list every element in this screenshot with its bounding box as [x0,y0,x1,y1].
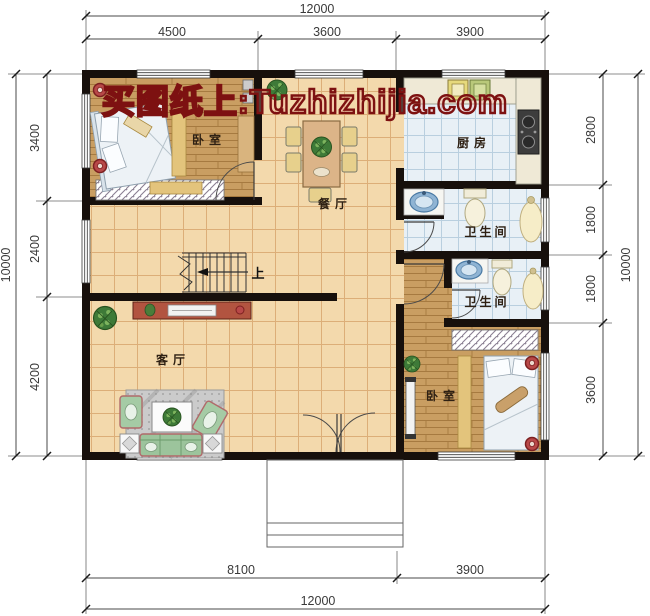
dim-top-total: 12000 [300,2,335,16]
dim-top-seg3: 3900 [456,25,484,39]
window [82,220,90,283]
room-label-bedroom-top: 卧室 [192,132,226,147]
window [82,94,90,168]
watermark-text: 买图纸上:Tuzhizhijia.com [102,83,508,120]
toilet [492,260,512,295]
dim-right-seg1: 2800 [584,116,598,144]
floor-plan-page: 卧室 餐厅 厨房 卫生间 卫生间 客厅 卧室 上 买图纸上:Tuzhizhiji… [0,0,650,616]
room-label-bath-lower: 卫生间 [464,294,509,309]
room-label-kitchen: 厨房 [457,135,491,150]
dim-right-seg4: 3600 [584,376,598,404]
window [438,452,515,460]
dim-bottom-seg1: 8100 [227,563,255,577]
armchair [120,396,142,428]
dim-left-seg1: 3400 [28,124,42,152]
dim-right-total: 10000 [619,248,633,283]
bed-foot-bench [150,182,202,194]
dining-chair [342,153,357,172]
window [137,70,210,78]
dining-chair [286,153,301,172]
dim-left-total: 10000 [0,248,13,283]
dimension-top: 12000 4500 3600 3900 [82,2,549,70]
dim-top-seg2: 3600 [313,25,341,39]
dim-top-seg1: 4500 [158,25,186,39]
dim-left-seg3: 4200 [28,363,42,391]
bathroom-sink [410,191,438,212]
dresser [238,116,254,172]
dimension-left: 3400 2400 4200 10000 [0,70,82,460]
room-label-bedroom-bottom: 卧室 [426,388,460,403]
bed [484,356,538,450]
room-label-living: 客厅 [155,352,190,367]
window [295,70,363,78]
room-label-bath-upper: 卫生间 [464,224,509,239]
bowl [314,168,330,177]
stove [518,110,539,154]
dimension-right: 2800 1800 1800 3600 10000 [549,70,645,460]
tv-console [133,302,251,319]
table-plant [312,137,332,157]
dim-bottom-total: 12000 [301,594,336,608]
dining-chair [342,127,357,146]
bedside-bench [172,112,186,176]
window [541,353,549,440]
wall-lamp [526,357,539,370]
wardrobe [452,330,538,350]
sofa [140,434,202,456]
room-label-dining: 餐厅 [318,196,352,211]
coffee-table [152,402,192,432]
floor-plan-canvas: 卧室 餐厅 厨房 卫生间 卫生间 客厅 卧室 上 买图纸上:Tuzhizhiji… [0,0,650,616]
dining-chair [286,127,301,146]
wall-lamp [526,438,539,451]
plant [94,307,117,330]
side-table [120,434,139,453]
side-table [203,434,222,453]
dim-right-seg3: 1800 [584,275,598,303]
toilet [464,189,486,227]
dim-left-seg2: 2400 [28,235,42,263]
porch-steps [267,460,403,547]
window [442,70,505,78]
mirror-cabinet [405,377,416,439]
wall-lamp [94,160,107,173]
stairs-up-label: 上 [251,266,264,281]
dim-bottom-seg2: 3900 [456,563,484,577]
dim-right-seg2: 1800 [584,206,598,234]
plant [404,356,420,372]
